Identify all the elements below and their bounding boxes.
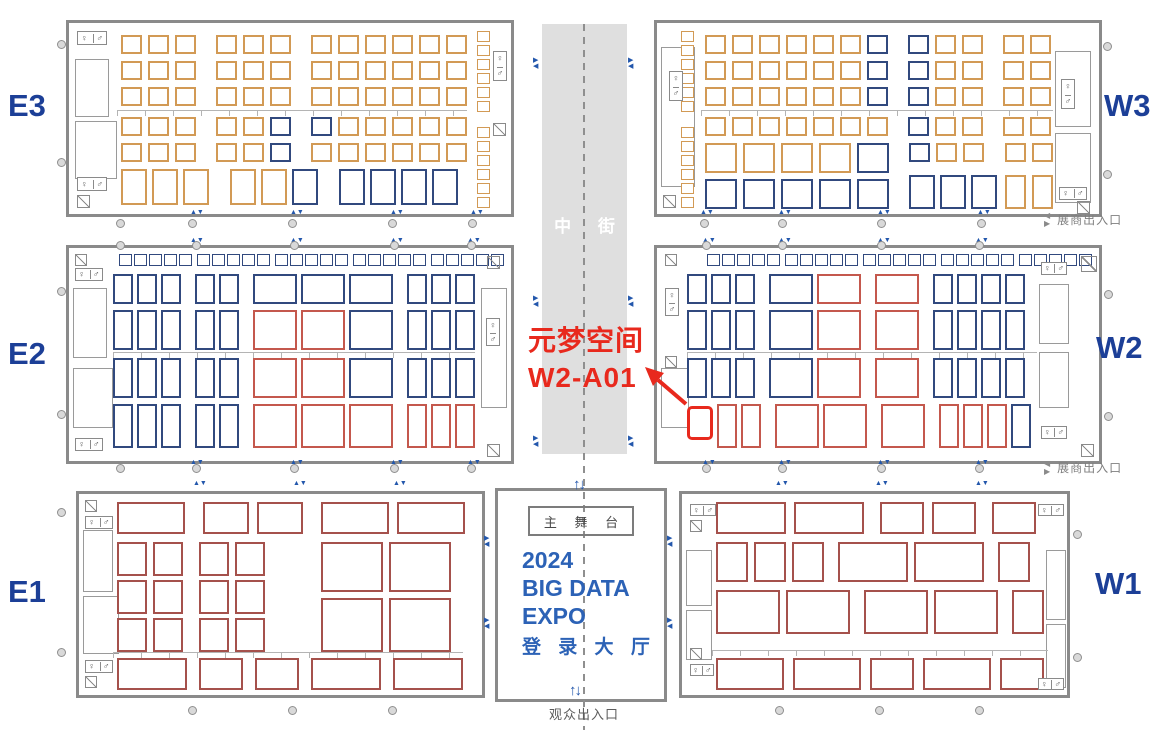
booth-strip bbox=[845, 254, 858, 266]
booth-strip bbox=[681, 45, 694, 56]
expo-name-line1: BIG DATA bbox=[522, 574, 656, 602]
expo-title-block: 2024 BIG DATA EXPO 登 录 大 厅 bbox=[522, 546, 656, 662]
booth bbox=[840, 117, 861, 136]
gate-marker bbox=[1103, 170, 1112, 179]
gate-marker bbox=[388, 706, 397, 715]
booth bbox=[923, 658, 991, 690]
utility-box-icon bbox=[663, 195, 676, 208]
booth-strip bbox=[353, 254, 366, 266]
booth bbox=[121, 87, 142, 106]
annotation-booth-code: W2-A01 bbox=[528, 359, 644, 396]
booth-strip bbox=[477, 73, 490, 84]
booth bbox=[840, 61, 861, 80]
booth bbox=[321, 542, 383, 592]
hall-label-e2: E2 bbox=[8, 336, 46, 372]
booth bbox=[407, 274, 427, 304]
booth-strip bbox=[477, 101, 490, 112]
booth-strip bbox=[149, 254, 162, 266]
booth bbox=[175, 117, 196, 136]
gate-marker bbox=[1104, 412, 1113, 421]
booth bbox=[161, 310, 181, 350]
booth bbox=[732, 35, 753, 54]
booth bbox=[419, 87, 440, 106]
booth bbox=[161, 358, 181, 398]
booth bbox=[365, 87, 386, 106]
booth bbox=[971, 175, 997, 209]
booth-strip bbox=[257, 254, 270, 266]
booth bbox=[735, 310, 755, 350]
gate-marker bbox=[775, 706, 784, 715]
booth bbox=[338, 61, 359, 80]
booth-strip bbox=[320, 254, 333, 266]
utility-box-icon bbox=[1081, 256, 1097, 272]
booth bbox=[199, 618, 229, 652]
booth bbox=[113, 310, 133, 350]
booth bbox=[794, 502, 864, 534]
booth bbox=[243, 61, 264, 80]
booth bbox=[455, 310, 475, 350]
booth bbox=[253, 358, 297, 398]
booth-strip bbox=[197, 254, 210, 266]
utility-box-icon bbox=[690, 648, 702, 660]
gate-marker bbox=[116, 241, 125, 250]
restroom-icon: ♀♂ bbox=[85, 660, 113, 673]
booth bbox=[117, 580, 147, 614]
booth bbox=[446, 61, 467, 80]
door-arrows-icon: ▲▼ bbox=[775, 480, 789, 487]
booth bbox=[148, 35, 169, 54]
booth bbox=[705, 143, 737, 173]
booth bbox=[957, 274, 977, 304]
booth bbox=[216, 35, 237, 54]
booth bbox=[148, 117, 169, 136]
gate-marker bbox=[390, 464, 399, 473]
door-arrows-icon: ▲▼ bbox=[390, 209, 404, 216]
hall-w1: ♀♂♀♂♀♂♀♂ bbox=[679, 491, 1070, 698]
booth-strip bbox=[681, 155, 694, 166]
booth-strip bbox=[179, 254, 192, 266]
booth-strip bbox=[275, 254, 288, 266]
booth bbox=[933, 310, 953, 350]
booth-strip bbox=[383, 254, 396, 266]
booth bbox=[881, 404, 925, 448]
service-room bbox=[73, 288, 107, 358]
booth-strip bbox=[212, 254, 225, 266]
hall-e1: ♀♂♀♂ bbox=[76, 491, 485, 698]
booth bbox=[397, 502, 465, 534]
booth bbox=[113, 404, 133, 448]
restroom-icon: ♀♂ bbox=[77, 31, 107, 45]
booth-strip bbox=[722, 254, 735, 266]
gate-marker bbox=[390, 241, 399, 250]
booth bbox=[253, 404, 297, 448]
booth bbox=[257, 502, 303, 534]
gate-marker bbox=[467, 464, 476, 473]
gate-marker bbox=[192, 464, 201, 473]
booth bbox=[817, 358, 861, 398]
booth bbox=[1030, 61, 1051, 80]
gate-marker bbox=[877, 464, 886, 473]
booth bbox=[687, 274, 707, 304]
booth bbox=[754, 542, 786, 582]
booth bbox=[175, 87, 196, 106]
service-room bbox=[73, 368, 113, 428]
booth bbox=[389, 542, 451, 592]
hall-label-e3: E3 bbox=[8, 88, 46, 124]
booth-strip bbox=[335, 254, 348, 266]
gate-marker bbox=[1104, 290, 1113, 299]
booth bbox=[786, 87, 807, 106]
booth bbox=[705, 179, 737, 209]
booth bbox=[1030, 87, 1051, 106]
restroom-icon: ♀♂ bbox=[690, 664, 714, 676]
door-arrows-icon: ▲▼ bbox=[700, 209, 714, 216]
booth bbox=[219, 310, 239, 350]
dimension-line bbox=[712, 650, 1048, 656]
booth bbox=[216, 143, 237, 162]
door-arrows-icon: ▶◀ bbox=[484, 536, 489, 548]
gate-marker bbox=[192, 241, 201, 250]
hall-e2: ♀♂♀♂♀♂ bbox=[66, 245, 514, 464]
booth bbox=[446, 143, 467, 162]
utility-box-icon bbox=[690, 520, 702, 532]
gate-marker bbox=[1073, 530, 1082, 539]
booth bbox=[148, 87, 169, 106]
booth bbox=[813, 35, 834, 54]
booth bbox=[857, 179, 889, 209]
booth bbox=[270, 61, 291, 80]
hall-w3: ♀♂♀♂♀♂ bbox=[654, 20, 1102, 217]
booth bbox=[743, 179, 775, 209]
booth-strip bbox=[800, 254, 813, 266]
hall-e3: ♀♂♀♂♀♂ bbox=[66, 20, 514, 217]
door-arrows-icon: ▲▼ bbox=[393, 480, 407, 487]
booth bbox=[153, 580, 183, 614]
booth bbox=[338, 87, 359, 106]
door-arrows-icon: ▶◀ bbox=[628, 436, 633, 448]
booth bbox=[153, 542, 183, 576]
gate-marker bbox=[877, 241, 886, 250]
restroom-icon: ♀♂ bbox=[1059, 187, 1087, 200]
booth bbox=[235, 580, 265, 614]
booth bbox=[940, 175, 966, 209]
restroom-icon: ♀♂ bbox=[75, 268, 103, 281]
booth bbox=[195, 310, 215, 350]
booth-w2-a01-highlight bbox=[687, 406, 713, 440]
booth bbox=[936, 143, 957, 162]
booth bbox=[908, 61, 929, 80]
restroom-icon: ♀♂ bbox=[1038, 504, 1064, 516]
booth-strip bbox=[461, 254, 474, 266]
exhibitor-arrows-icon: ◀▶ bbox=[1044, 460, 1050, 476]
booth-strip bbox=[737, 254, 750, 266]
door-arrows-icon: ▲▼ bbox=[293, 480, 307, 487]
booth-strip bbox=[707, 254, 720, 266]
booth bbox=[216, 61, 237, 80]
booth bbox=[735, 274, 755, 304]
booth bbox=[933, 358, 953, 398]
booth-strip bbox=[290, 254, 303, 266]
exhibitor-exit-1: ◀▶ 展商出入口 bbox=[1044, 211, 1122, 228]
booth-strip bbox=[815, 254, 828, 266]
service-room bbox=[83, 530, 113, 592]
booth bbox=[419, 117, 440, 136]
booth bbox=[255, 658, 299, 690]
booth-strip bbox=[164, 254, 177, 266]
hall-label-w2: W2 bbox=[1096, 330, 1143, 366]
booth bbox=[932, 502, 976, 534]
booth bbox=[741, 404, 761, 448]
booth bbox=[933, 274, 953, 304]
booth bbox=[137, 358, 157, 398]
booth bbox=[867, 61, 888, 80]
booth bbox=[759, 87, 780, 106]
booth-strip bbox=[1019, 254, 1032, 266]
booth-annotation: 元梦空间 W2-A01 bbox=[528, 322, 644, 396]
dimension-line bbox=[117, 110, 467, 116]
booth bbox=[875, 310, 919, 350]
booth bbox=[743, 143, 775, 173]
booth bbox=[349, 404, 393, 448]
booth bbox=[935, 61, 956, 80]
door-arrows-icon: ▲▼ bbox=[877, 209, 891, 216]
booth bbox=[117, 502, 185, 534]
restroom-icon: ♀♂ bbox=[77, 177, 107, 191]
booth-strip bbox=[681, 31, 694, 42]
booth-strip bbox=[681, 197, 694, 208]
booth bbox=[880, 502, 924, 534]
booth bbox=[243, 117, 264, 136]
gate-marker bbox=[116, 464, 125, 473]
booth bbox=[716, 502, 786, 534]
booth bbox=[759, 61, 780, 80]
gate-marker bbox=[778, 219, 787, 228]
booth bbox=[867, 87, 888, 106]
door-arrows-icon: ▲▼ bbox=[290, 209, 304, 216]
booth-strip bbox=[398, 254, 411, 266]
booth bbox=[365, 35, 386, 54]
booth bbox=[781, 143, 813, 173]
center-street-label: 中 街 bbox=[542, 212, 627, 237]
booth-strip bbox=[785, 254, 798, 266]
booth-strip bbox=[681, 183, 694, 194]
expo-year: 2024 bbox=[522, 546, 656, 574]
booth bbox=[121, 169, 147, 205]
booth bbox=[199, 658, 243, 690]
booth-strip bbox=[681, 169, 694, 180]
gate-marker bbox=[288, 706, 297, 715]
service-room bbox=[75, 59, 109, 117]
booth bbox=[1003, 35, 1024, 54]
booth bbox=[732, 117, 753, 136]
utility-box-icon bbox=[493, 123, 506, 136]
booth bbox=[235, 542, 265, 576]
booth bbox=[117, 658, 187, 690]
booth bbox=[148, 143, 169, 162]
booth bbox=[963, 143, 984, 162]
booth bbox=[786, 590, 850, 634]
booth bbox=[389, 598, 451, 652]
booth bbox=[786, 61, 807, 80]
door-arrows-icon: ▶◀ bbox=[667, 618, 672, 630]
restroom-icon: ♀♂ bbox=[493, 51, 507, 81]
booth bbox=[195, 404, 215, 448]
gate-marker bbox=[702, 241, 711, 250]
hall-label-w3: W3 bbox=[1104, 88, 1151, 124]
booth bbox=[121, 61, 142, 80]
booth bbox=[705, 87, 726, 106]
booth bbox=[1005, 175, 1026, 209]
booth bbox=[117, 618, 147, 652]
booth bbox=[253, 274, 297, 304]
gate-marker bbox=[57, 410, 66, 419]
booth bbox=[431, 274, 451, 304]
booth-strip bbox=[681, 59, 694, 70]
booth bbox=[243, 143, 264, 162]
booth bbox=[365, 117, 386, 136]
booth bbox=[270, 35, 291, 54]
booth bbox=[311, 87, 332, 106]
booth-strip bbox=[227, 254, 240, 266]
booth bbox=[1011, 404, 1031, 448]
door-arrows-icon: ▶◀ bbox=[533, 436, 538, 448]
utility-box-icon bbox=[85, 500, 97, 512]
booth bbox=[992, 502, 1036, 534]
booth-strip bbox=[863, 254, 876, 266]
gate-marker bbox=[778, 464, 787, 473]
door-arrows-icon: ▲▼ bbox=[470, 209, 484, 216]
booth bbox=[934, 590, 998, 634]
booth bbox=[349, 358, 393, 398]
exhibitor-exit-2: ◀▶ 展商出入口 bbox=[1044, 459, 1122, 476]
gate-marker bbox=[388, 219, 397, 228]
booth bbox=[769, 310, 813, 350]
booth bbox=[393, 658, 463, 690]
gate-marker bbox=[57, 648, 66, 657]
booth bbox=[759, 35, 780, 54]
booth-strip bbox=[477, 127, 490, 138]
service-room bbox=[1046, 550, 1066, 620]
gate-marker bbox=[188, 219, 197, 228]
booth bbox=[301, 274, 345, 304]
booth bbox=[455, 358, 475, 398]
booth bbox=[407, 358, 427, 398]
gate-marker bbox=[1103, 42, 1112, 51]
booth bbox=[962, 87, 983, 106]
booth bbox=[349, 310, 393, 350]
booth bbox=[392, 61, 413, 80]
main-stage-box: 主 舞 台 bbox=[528, 506, 634, 536]
booth bbox=[199, 580, 229, 614]
service-room bbox=[83, 596, 119, 654]
booth bbox=[1032, 143, 1053, 162]
booth-strip bbox=[134, 254, 147, 266]
booth bbox=[716, 542, 748, 582]
gate-marker bbox=[977, 219, 986, 228]
gate-marker bbox=[1073, 653, 1082, 662]
restroom-icon: ♀♂ bbox=[669, 71, 683, 101]
booth-strip bbox=[1001, 254, 1014, 266]
booth bbox=[909, 175, 935, 209]
booth bbox=[867, 35, 888, 54]
booth-strip bbox=[446, 254, 459, 266]
booth bbox=[121, 35, 142, 54]
restroom-icon: ♀♂ bbox=[1041, 426, 1067, 439]
booth bbox=[875, 358, 919, 398]
booth bbox=[219, 274, 239, 304]
booth bbox=[987, 404, 1007, 448]
booth-strip bbox=[878, 254, 891, 266]
booth bbox=[270, 117, 291, 136]
booth bbox=[711, 310, 731, 350]
booth bbox=[311, 658, 381, 690]
door-arrows-icon: ▶◀ bbox=[533, 58, 538, 70]
restroom-icon: ♀♂ bbox=[85, 516, 113, 529]
booth-strip bbox=[242, 254, 255, 266]
booth-strip bbox=[681, 141, 694, 152]
door-arrows-icon: ▲▼ bbox=[193, 480, 207, 487]
dimension-line bbox=[701, 110, 1053, 116]
booth bbox=[121, 143, 142, 162]
booth bbox=[1005, 358, 1025, 398]
gate-marker bbox=[778, 241, 787, 250]
booth bbox=[786, 117, 807, 136]
gate-marker bbox=[116, 219, 125, 228]
booth bbox=[813, 87, 834, 106]
service-room bbox=[481, 288, 507, 408]
restroom-icon: ♀♂ bbox=[1041, 262, 1067, 275]
booth bbox=[349, 274, 393, 304]
booth bbox=[137, 404, 157, 448]
booth bbox=[716, 658, 784, 690]
door-arrows-icon: ▲▼ bbox=[190, 209, 204, 216]
booth bbox=[195, 274, 215, 304]
booth-strip bbox=[305, 254, 318, 266]
booth bbox=[338, 143, 359, 162]
booth bbox=[823, 404, 867, 448]
gate-marker bbox=[57, 158, 66, 167]
booth bbox=[370, 169, 396, 205]
booth bbox=[137, 274, 157, 304]
booth bbox=[813, 117, 834, 136]
booth-strip bbox=[477, 155, 490, 166]
booth-strip bbox=[681, 127, 694, 138]
booth bbox=[819, 179, 851, 209]
booth bbox=[857, 143, 889, 173]
booth bbox=[455, 404, 475, 448]
login-lobby-label: 登 录 大 厅 bbox=[522, 634, 656, 662]
booth bbox=[716, 590, 780, 634]
booth bbox=[292, 169, 318, 205]
booth bbox=[446, 87, 467, 106]
exhibitor-arrows-icon: ◀▶ bbox=[1044, 212, 1050, 228]
booth bbox=[711, 358, 731, 398]
gate-marker bbox=[57, 40, 66, 49]
restroom-icon: ♀♂ bbox=[75, 438, 103, 451]
booth-strip bbox=[477, 169, 490, 180]
door-arrows-icon: ▶◀ bbox=[667, 536, 672, 548]
booth bbox=[117, 542, 147, 576]
booth bbox=[311, 143, 332, 162]
booth bbox=[1003, 117, 1024, 136]
door-arrows-icon: ▲▼ bbox=[977, 209, 991, 216]
booth bbox=[311, 117, 332, 136]
utility-box-icon bbox=[75, 254, 87, 266]
booth bbox=[199, 542, 229, 576]
booth bbox=[175, 143, 196, 162]
restroom-icon: ♀♂ bbox=[665, 288, 679, 316]
booth bbox=[939, 404, 959, 448]
